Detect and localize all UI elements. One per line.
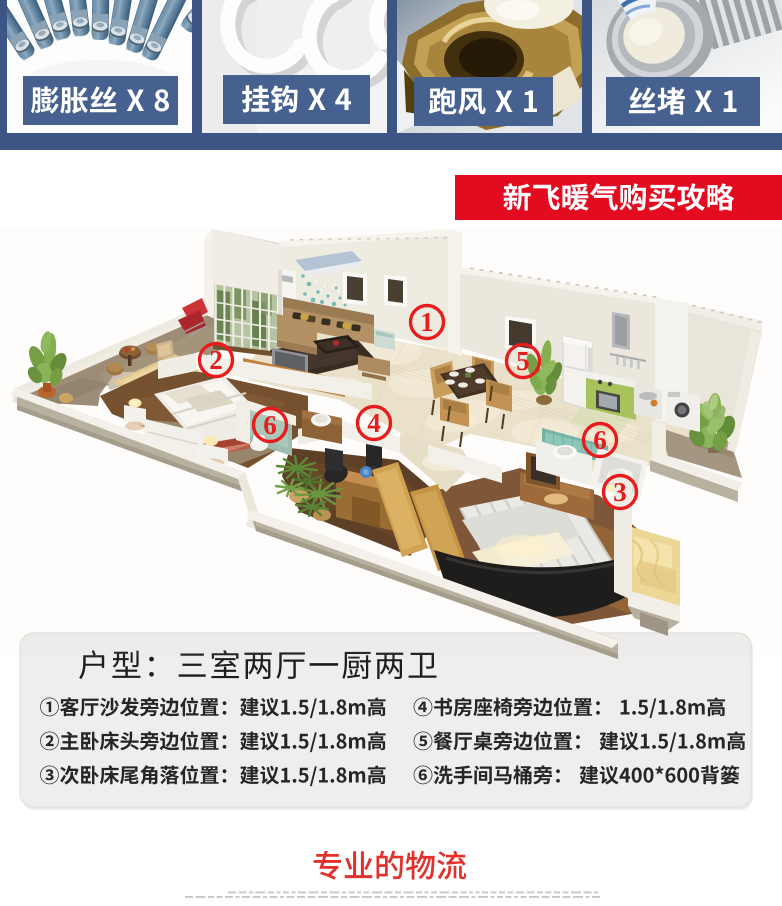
svg-text:3: 3 (613, 477, 627, 507)
svg-text:1: 1 (420, 307, 434, 337)
svg-text:2: 2 (209, 345, 223, 375)
svg-text:4: 4 (367, 408, 381, 438)
svg-text:5: 5 (516, 346, 530, 376)
svg-text:6: 6 (593, 425, 607, 455)
svg-text:6: 6 (263, 410, 277, 440)
